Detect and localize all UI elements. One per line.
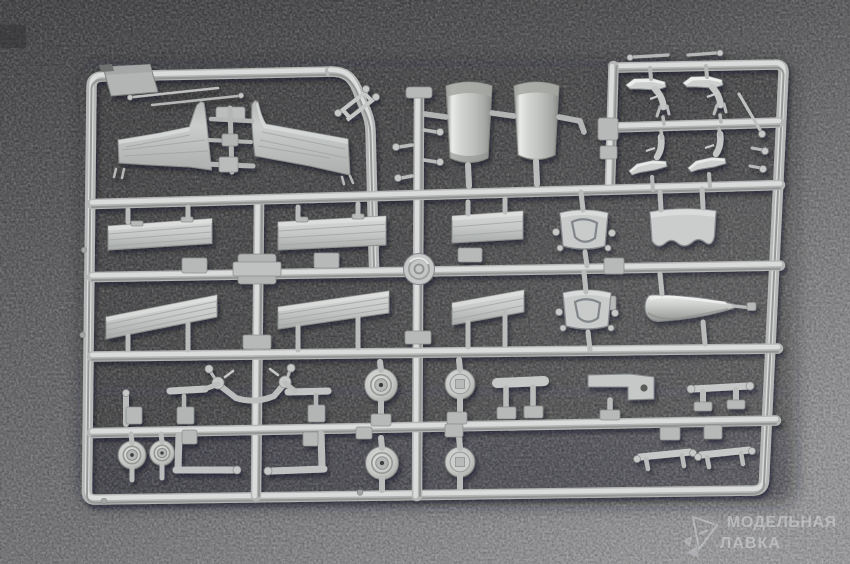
svg-text:ЛАВКА: ЛАВКА <box>720 535 781 552</box>
svg-text:МОДЕЛЬНАЯ: МОДЕЛЬНАЯ <box>727 514 836 531</box>
